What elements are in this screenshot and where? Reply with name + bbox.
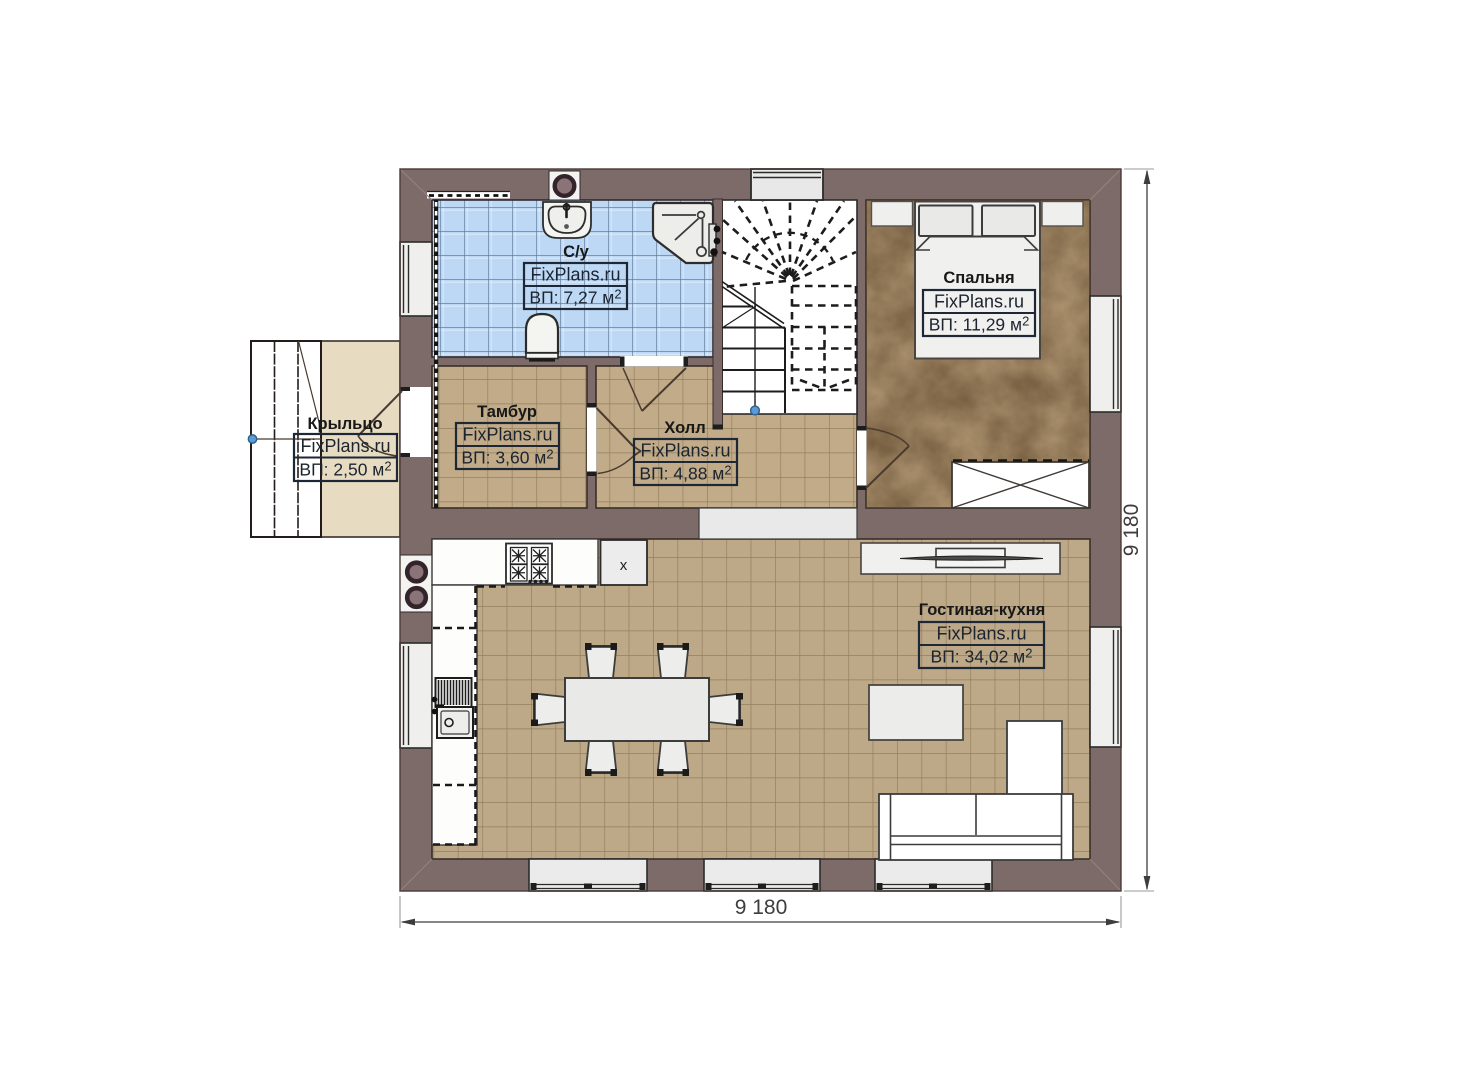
svg-text:FixPlans.ru: FixPlans.ru: [936, 624, 1026, 644]
svg-text:x: x: [620, 557, 628, 574]
svg-text:FixPlans.ru: FixPlans.ru: [300, 436, 390, 456]
svg-text:FixPlans.ru: FixPlans.ru: [530, 265, 620, 285]
svg-text:Спальня: Спальня: [943, 269, 1014, 287]
svg-text:С/у: С/у: [563, 243, 590, 261]
svg-text:ВП: 4,88 м2: ВП: 4,88 м2: [639, 463, 731, 484]
svg-text:ВП: 34,02 м2: ВП: 34,02 м2: [931, 646, 1033, 667]
svg-text:FixPlans.ru: FixPlans.ru: [462, 425, 552, 445]
svg-text:9 180: 9 180: [1120, 504, 1143, 557]
svg-text:Крыльцо: Крыльцо: [307, 415, 382, 433]
svg-text:9 180: 9 180: [735, 896, 788, 919]
svg-text:ВП: 3,60 м2: ВП: 3,60 м2: [461, 447, 553, 468]
svg-text:FixPlans.ru: FixPlans.ru: [640, 441, 730, 461]
svg-text:FixPlans.ru: FixPlans.ru: [934, 292, 1024, 312]
svg-text:Холл: Холл: [664, 419, 705, 437]
svg-text:ВП: 2,50 м2: ВП: 2,50 м2: [299, 459, 391, 480]
svg-text:ВП: 11,29 м2: ВП: 11,29 м2: [929, 314, 1030, 335]
svg-text:ВП: 7,27 м2: ВП: 7,27 м2: [529, 287, 621, 308]
svg-text:Тамбур: Тамбур: [477, 403, 537, 421]
svg-text:Гостиная-кухня: Гостиная-кухня: [919, 601, 1045, 619]
